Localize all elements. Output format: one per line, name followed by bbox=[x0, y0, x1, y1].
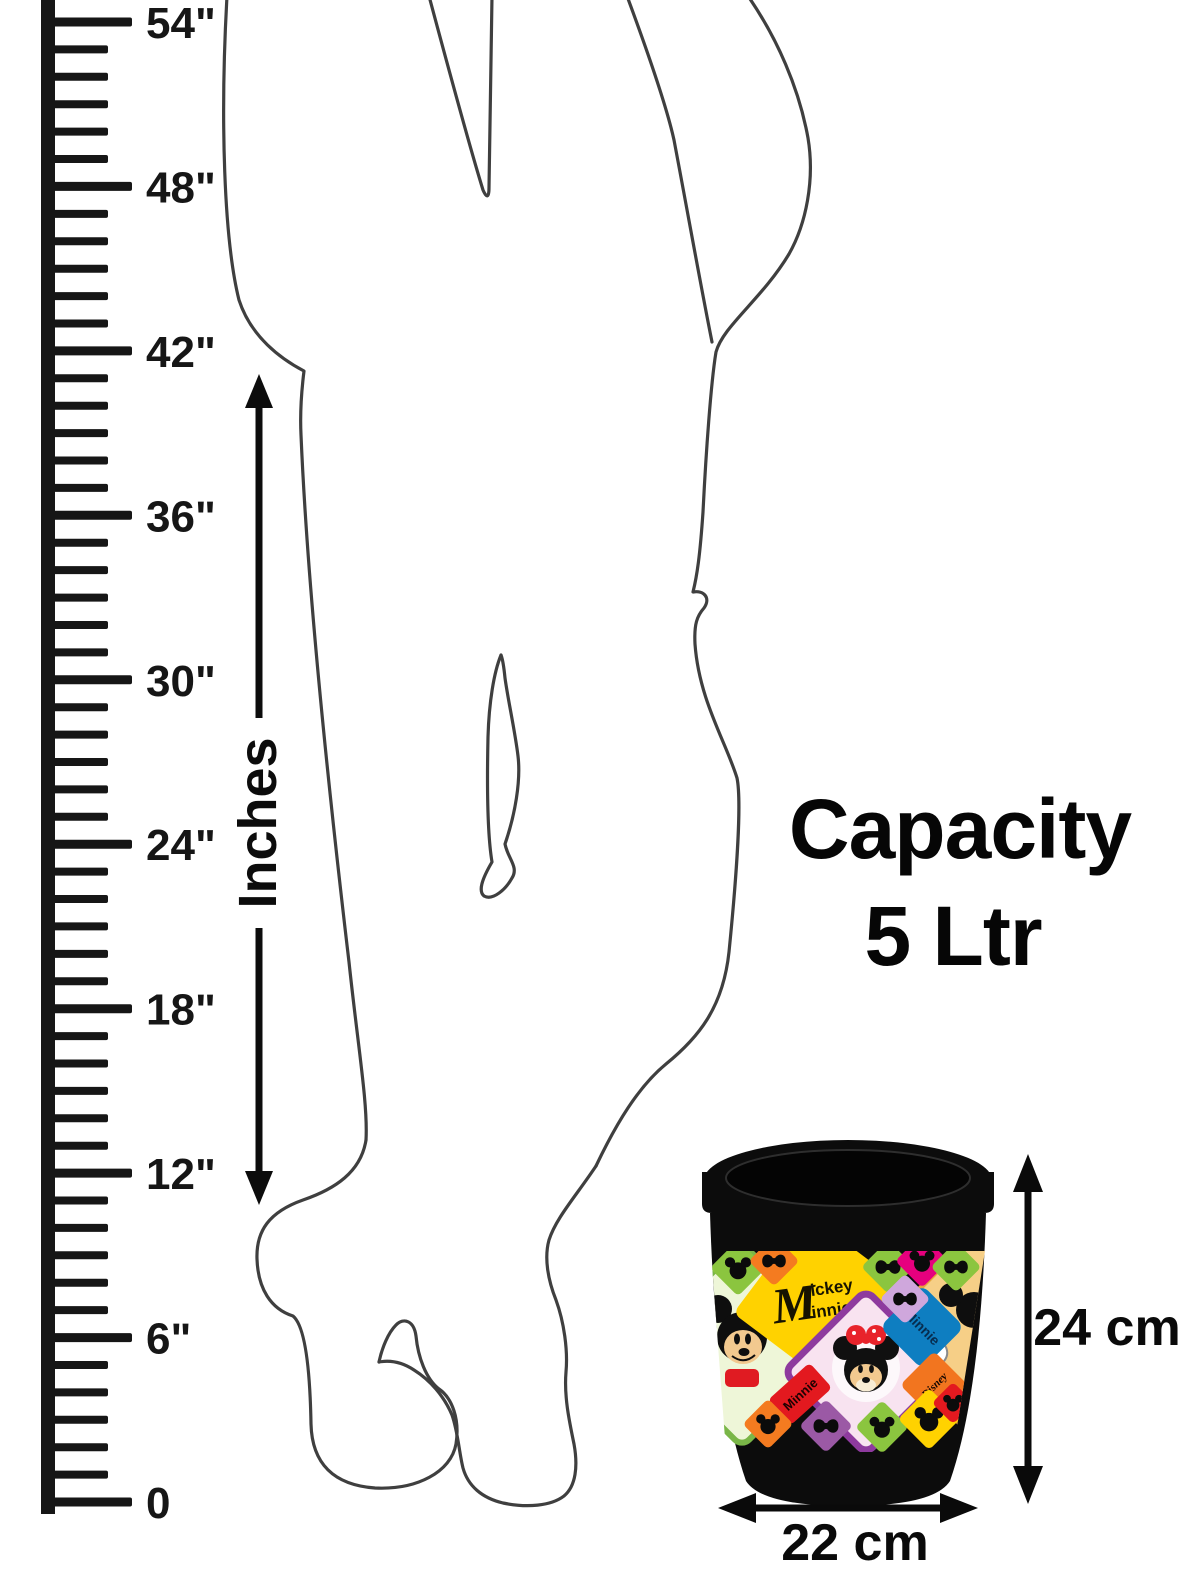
ruler-minor-tick bbox=[48, 1388, 108, 1396]
ruler-minor-tick bbox=[48, 895, 108, 903]
ruler-major-tick bbox=[48, 1333, 132, 1342]
arrowhead-right-icon bbox=[940, 1493, 978, 1523]
ruler-minor-tick bbox=[48, 265, 108, 273]
ruler-tick-label: 6" bbox=[146, 1315, 191, 1364]
height-dimension-label: 24 cm bbox=[1033, 1299, 1180, 1357]
ruler-major-tick bbox=[48, 840, 132, 849]
capacity-value: 5 Ltr bbox=[864, 889, 1041, 983]
ruler-minor-tick bbox=[48, 1142, 108, 1150]
ruler-minor-tick bbox=[48, 155, 108, 163]
person-collar bbox=[429, 0, 492, 196]
product-dimension-diagram: 54"48"42"36"30"24"18"12"6"0 Inches Capac… bbox=[0, 0, 1200, 1584]
ruler-tick-label: 54" bbox=[146, 0, 216, 48]
ruler-minor-tick bbox=[48, 922, 108, 930]
ruler-tick-label: 42" bbox=[146, 328, 216, 377]
ruler-minor-tick bbox=[48, 1197, 108, 1205]
ruler-minor-tick bbox=[48, 594, 108, 602]
ruler-minor-tick bbox=[48, 1114, 108, 1122]
ruler-minor-tick bbox=[48, 1087, 108, 1095]
person-right-shoe bbox=[379, 1166, 596, 1506]
ruler-minor-tick bbox=[48, 950, 108, 958]
ruler-tick-label: 48" bbox=[146, 163, 216, 212]
ruler-minor-tick bbox=[48, 758, 108, 766]
ruler-minor-tick bbox=[48, 128, 108, 136]
arrowhead-down-icon bbox=[245, 1171, 273, 1205]
ruler-minor-tick bbox=[48, 868, 108, 876]
ruler-minor-tick bbox=[48, 374, 108, 382]
ruler-major-tick bbox=[48, 511, 132, 520]
arrow-shaft bbox=[1025, 1188, 1032, 1470]
ruler-minor-tick bbox=[48, 100, 108, 108]
arrow-shaft bbox=[752, 1505, 944, 1512]
ruler-minor-tick bbox=[48, 402, 108, 410]
ruler-minor-tick bbox=[48, 813, 108, 821]
bucket-opening bbox=[726, 1150, 970, 1206]
ruler-minor-tick bbox=[48, 1032, 108, 1040]
ruler-minor-tick bbox=[48, 1361, 108, 1369]
ruler-tick-label: 36" bbox=[146, 492, 216, 541]
ruler-tick-label: 18" bbox=[146, 986, 216, 1035]
ruler-major-tick bbox=[48, 182, 132, 191]
ruler-minor-tick bbox=[48, 1279, 108, 1287]
person-left-side bbox=[224, 0, 367, 1140]
person-leg-gap bbox=[481, 655, 519, 897]
ruler-minor-tick bbox=[48, 977, 108, 985]
ruler-minor-tick bbox=[48, 237, 108, 245]
ruler-minor-tick bbox=[48, 566, 108, 574]
ruler-minor-tick bbox=[48, 1251, 108, 1259]
height-ruler: 54"48"42"36"30"24"18"12"6"0 bbox=[41, 0, 216, 1528]
ruler-minor-tick bbox=[48, 1306, 108, 1314]
capacity-title: Capacity bbox=[789, 782, 1132, 876]
ruler-minor-tick bbox=[48, 785, 108, 793]
person-arm-seam bbox=[627, 0, 712, 342]
arrow-shaft-upper bbox=[256, 405, 263, 718]
arrowhead-up-icon bbox=[245, 374, 273, 408]
ruler-minor-tick bbox=[48, 1471, 108, 1479]
ruler-minor-tick bbox=[48, 1416, 108, 1424]
inches-range-arrow: Inches bbox=[228, 374, 288, 1205]
arrowhead-left-icon bbox=[718, 1493, 756, 1523]
ruler-minor-tick bbox=[48, 703, 108, 711]
ruler-minor-tick bbox=[48, 539, 108, 547]
ruler-minor-tick bbox=[48, 1060, 108, 1068]
arrowhead-down-icon bbox=[1013, 1466, 1043, 1504]
ruler-minor-tick bbox=[48, 73, 108, 81]
arrowhead-up-icon bbox=[1013, 1154, 1043, 1192]
ruler-minor-tick bbox=[48, 457, 108, 465]
person-left-shoe bbox=[257, 1140, 457, 1488]
ruler-major-tick bbox=[48, 1004, 132, 1013]
ruler-tick-label: 0 bbox=[146, 1479, 170, 1528]
ruler-minor-tick bbox=[48, 621, 108, 629]
ruler-tick-label: 12" bbox=[146, 1150, 216, 1199]
ruler-minor-tick bbox=[48, 1443, 108, 1451]
person-right-side bbox=[596, 0, 810, 1166]
ruler-tick-label: 30" bbox=[146, 657, 216, 706]
ruler-major-tick bbox=[48, 18, 132, 27]
ruler-minor-tick bbox=[48, 429, 108, 437]
ruler-minor-tick bbox=[48, 45, 108, 53]
ruler-bar bbox=[41, 0, 55, 1514]
inches-label: Inches bbox=[228, 737, 288, 908]
width-dimension-label: 22 cm bbox=[781, 1514, 928, 1572]
ruler-major-tick bbox=[48, 1169, 132, 1178]
ruler-major-tick bbox=[48, 346, 132, 355]
ruler-major-tick bbox=[48, 1498, 132, 1507]
ruler-minor-tick bbox=[48, 292, 108, 300]
ruler-major-tick bbox=[48, 675, 132, 684]
ruler-minor-tick bbox=[48, 210, 108, 218]
ruler-tick-label: 24" bbox=[146, 821, 216, 870]
ruler-minor-tick bbox=[48, 484, 108, 492]
ruler-minor-tick bbox=[48, 648, 108, 656]
ruler-minor-tick bbox=[48, 320, 108, 328]
ruler-minor-tick bbox=[48, 731, 108, 739]
arrow-shaft-lower bbox=[256, 928, 263, 1176]
ruler-ticks bbox=[48, 18, 132, 1507]
ruler-labels: 54"48"42"36"30"24"18"12"6"0 bbox=[146, 0, 216, 1528]
ruler-minor-tick bbox=[48, 1224, 108, 1232]
